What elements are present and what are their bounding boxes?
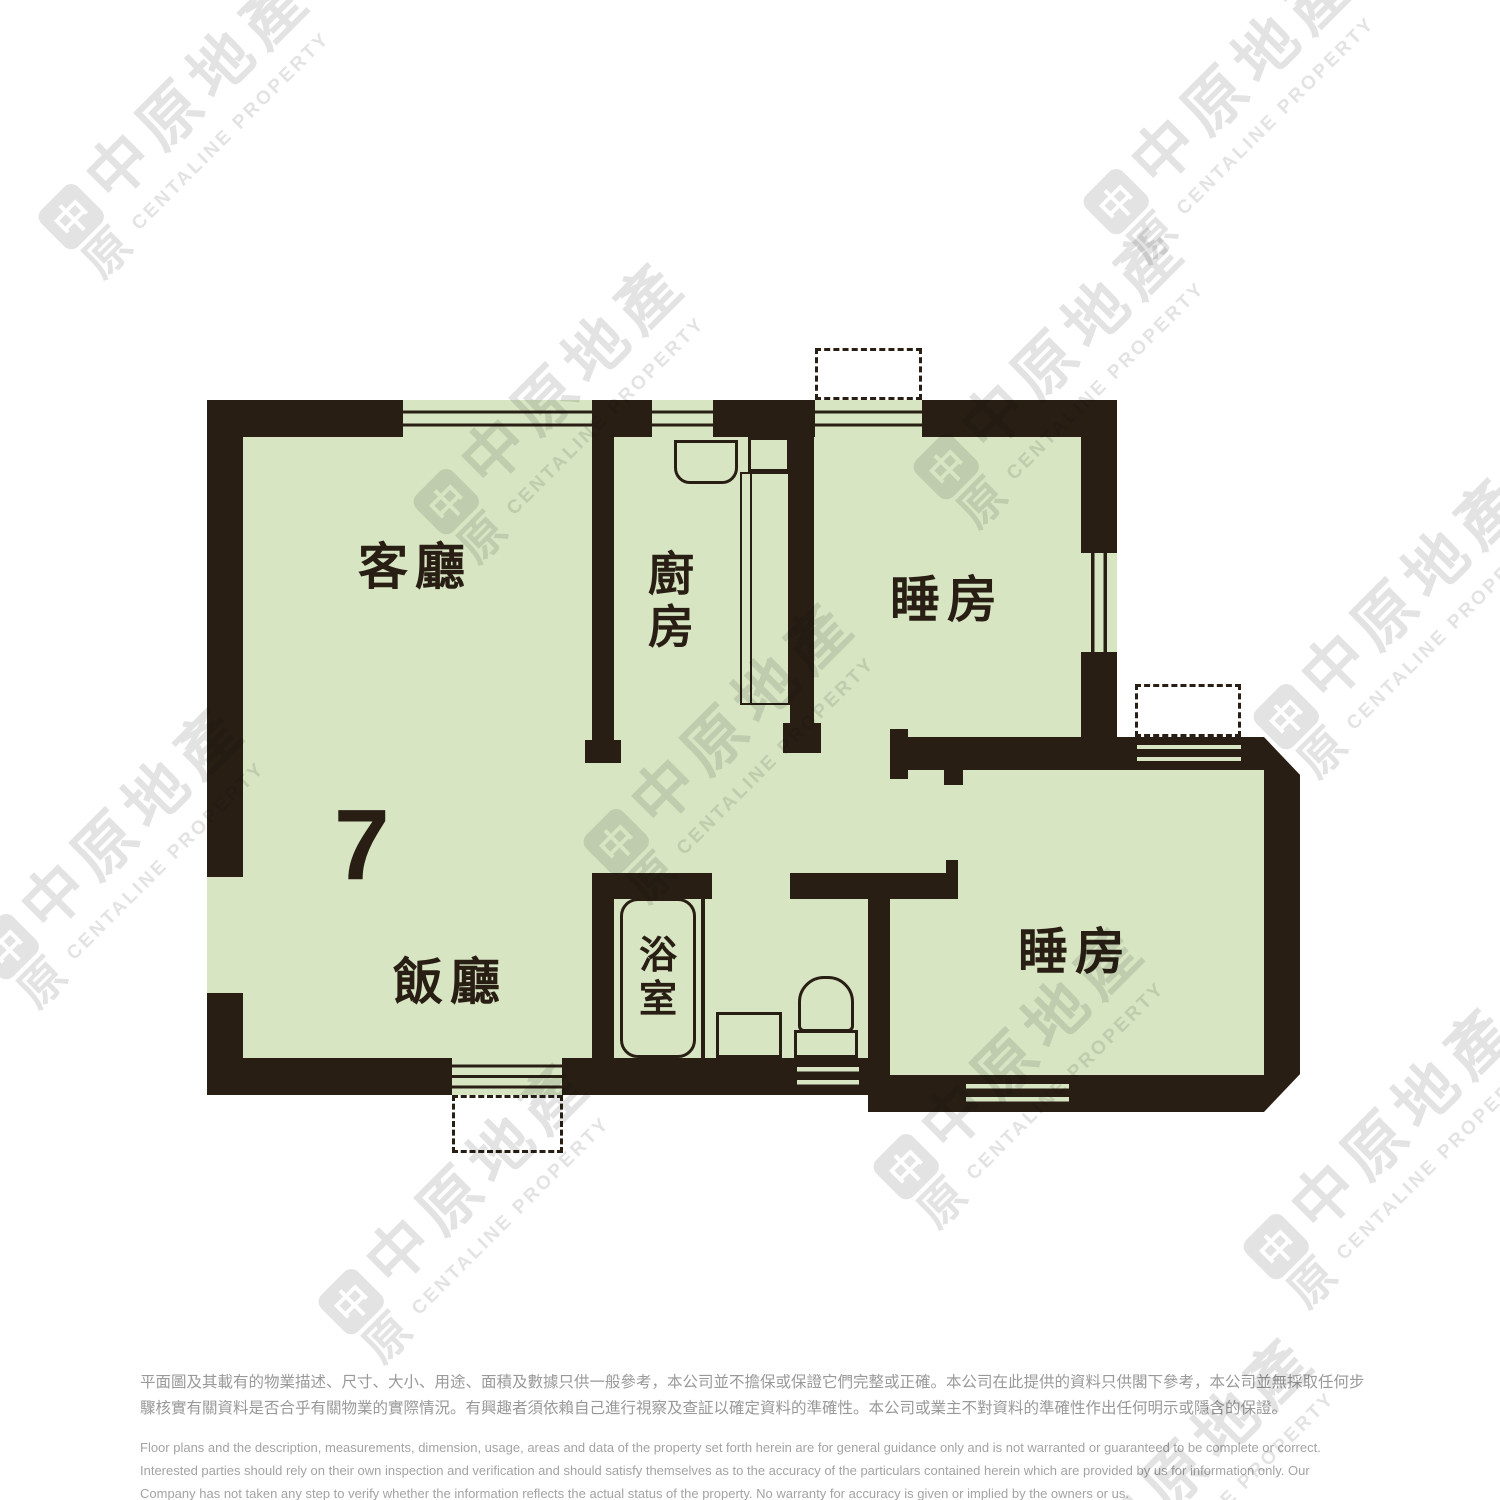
room-label-bathroom: 浴室 bbox=[637, 935, 679, 1022]
room-label-kitchen: 廚房 bbox=[646, 548, 696, 654]
centaline-watermark: 中 原 中原地產 CENTALINE PROPERTY bbox=[290, 1140, 720, 1310]
centaline-watermark: 中 原 中原地產 CENTALINE PROPERTY bbox=[1225, 555, 1500, 725]
wall-bedroom-bottom-right bbox=[1264, 770, 1300, 1112]
watermark-english-text: CENTALINE PROPERTY bbox=[1173, 1, 1392, 220]
disclaimer-zh-line1: 平面圖及其載有的物業描述、尺寸、大小、用途、面積及數據只供一般參考，本公司並不擔… bbox=[140, 1370, 1480, 1396]
room-label-living: 客廳 bbox=[358, 527, 472, 599]
wall-kitchen-left-cap bbox=[585, 740, 621, 763]
watermark-english-text: CENTALINE PROPERTY bbox=[1343, 516, 1500, 735]
logo-seal-glyph: 原 bbox=[1278, 1249, 1346, 1317]
disclaimer-en-line3: Company has not taken any step to verify… bbox=[140, 1482, 1480, 1500]
kitchen-counter bbox=[740, 472, 790, 705]
watermark-chinese-text: 中原地產 bbox=[1266, 979, 1500, 1246]
window-kitchen-top bbox=[652, 400, 713, 437]
floor-plan-page: 中 原 中原地產 CENTALINE PROPERTY bbox=[0, 0, 1500, 1500]
ac-platform-top bbox=[815, 348, 922, 400]
toilet-bowl bbox=[798, 976, 854, 1032]
logo-top-glyph: 中 bbox=[0, 910, 43, 984]
wash-basin bbox=[716, 1012, 782, 1058]
ac-platform-right bbox=[1135, 684, 1241, 737]
wall-bedroom-bottom-bottom bbox=[868, 1075, 1300, 1112]
wall-kitchen-right bbox=[790, 437, 814, 723]
ac-platform-bottom bbox=[452, 1095, 563, 1153]
window-bedroom2-bottom bbox=[966, 1075, 1069, 1112]
watermark-chinese-text: 中原地產 bbox=[61, 0, 328, 217]
watermark-text: 中原地產 CENTALINE PROPERTY bbox=[61, 0, 347, 235]
centaline-logo-icon: 中 原 bbox=[869, 1130, 978, 1239]
logo-top-glyph: 中 bbox=[34, 180, 108, 254]
room-label-dining: 飯廳 bbox=[393, 942, 507, 1014]
unit-number: 7 bbox=[334, 788, 390, 903]
logo-seal-glyph: 原 bbox=[353, 1304, 421, 1372]
window-bedroom-top bbox=[815, 400, 922, 437]
centaline-logo-icon: 中 原 bbox=[314, 1265, 423, 1374]
wall-mid-cap bbox=[890, 729, 908, 779]
toilet-base bbox=[794, 1030, 858, 1058]
logo-seal-glyph: 原 bbox=[73, 219, 141, 287]
window-living-top bbox=[403, 400, 592, 437]
logo-top-glyph: 中 bbox=[1239, 1210, 1313, 1284]
wall-kitchen-right-cap bbox=[783, 723, 821, 753]
disclaimer: 平面圖及其載有的物業描述、尺寸、大小、用途、面積及數據只供一般參考，本公司並不擔… bbox=[140, 1370, 1480, 1500]
wall-kitchen-left bbox=[592, 437, 614, 740]
kitchen-sink bbox=[674, 440, 738, 484]
watermark-text: 中原地產 CENTALINE PROPERTY bbox=[1106, 0, 1392, 220]
disclaimer-zh-line2: 驟核實有關資料是否合乎有關物業的實際情況。有興趣者須依賴自己進行視察及查証以確定… bbox=[140, 1396, 1480, 1422]
watermark-text: 中原地產 CENTALINE PROPERTY bbox=[1276, 449, 1500, 735]
kitchen-counter-inner-line bbox=[750, 474, 752, 703]
centaline-logo-icon: 中 原 bbox=[0, 910, 79, 1019]
wall-corridor-top bbox=[790, 873, 958, 899]
logo-seal-glyph: 原 bbox=[1118, 204, 1186, 272]
kitchen-appliance bbox=[748, 437, 790, 472]
centaline-logo-icon: 中 原 bbox=[1239, 1210, 1348, 1319]
wall-left-upper bbox=[207, 400, 243, 877]
wall-mid-bump bbox=[944, 770, 963, 785]
window-bedroom-right bbox=[1081, 553, 1117, 652]
window-bedroom2-top bbox=[1137, 737, 1241, 770]
disclaimer-en-line1: Floor plans and the description, measure… bbox=[140, 1436, 1480, 1459]
watermark-chinese-text: 中原地產 bbox=[1276, 449, 1500, 716]
wall-bathroom-partition bbox=[701, 899, 705, 1058]
watermark-english-text: CENTALINE PROPERTY bbox=[128, 16, 347, 235]
wall-corridor-cap bbox=[946, 860, 958, 873]
disclaimer-en-line2: Interested parties should rely on their … bbox=[140, 1459, 1480, 1482]
centaline-watermark: 中 原 中原地產 CENTALINE PROPERTY bbox=[1055, 40, 1485, 210]
watermark-chinese-text: 中原地產 bbox=[1106, 0, 1373, 202]
watermark-text: 中原地產 CENTALINE PROPERTY bbox=[1266, 979, 1500, 1265]
centaline-watermark: 中 原 中原地產 CENTALINE PROPERTY bbox=[10, 55, 440, 225]
window-dining-bottom bbox=[452, 1058, 562, 1095]
logo-top-glyph: 中 bbox=[869, 1130, 943, 1204]
wall-bedroom-bottom-left bbox=[868, 899, 890, 1075]
logo-top-glyph: 中 bbox=[314, 1265, 388, 1339]
logo-top-glyph: 中 bbox=[1079, 165, 1153, 239]
wall-bathroom-left bbox=[592, 899, 614, 1058]
logo-seal-glyph: 原 bbox=[908, 1169, 976, 1237]
floor-area-left-opening bbox=[207, 877, 243, 993]
logo-seal-glyph: 原 bbox=[8, 949, 76, 1017]
centaline-logo-icon: 中 原 bbox=[1079, 165, 1188, 274]
centaline-logo-icon: 中 原 bbox=[34, 180, 143, 289]
room-label-bedroom-top: 睡房 bbox=[890, 560, 1004, 632]
room-label-bedroom-bottom: 睡房 bbox=[1018, 912, 1132, 984]
watermark-english-text: CENTALINE PROPERTY bbox=[1333, 1046, 1500, 1265]
wall-bathroom-top bbox=[592, 873, 712, 899]
window-toilet-bottom bbox=[797, 1058, 859, 1095]
